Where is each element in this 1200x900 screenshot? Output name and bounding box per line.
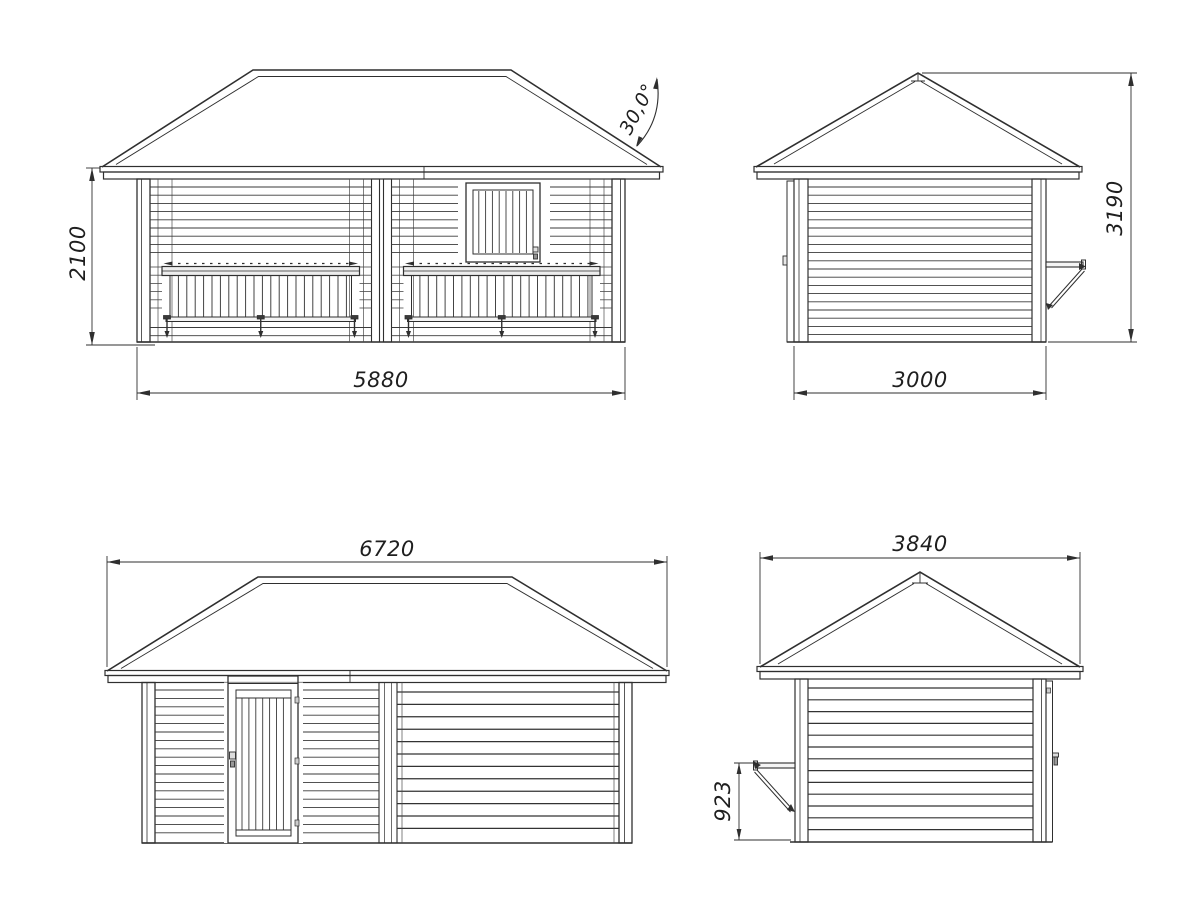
side-elevation-a-view: 3000 3190 bbox=[754, 73, 1137, 400]
rear-roof bbox=[105, 577, 669, 683]
technical-drawing-sheet: 2100 5880 30,0° 3000 3190 6720 bbox=[0, 0, 1200, 900]
rear-wall bbox=[142, 676, 632, 843]
front-wall bbox=[137, 179, 625, 342]
front-elevation-view: 2100 5880 30,0° bbox=[66, 70, 663, 400]
side-a-roof bbox=[754, 73, 1082, 179]
side-a-wall bbox=[783, 179, 1086, 342]
side-b-wall bbox=[753, 679, 1059, 842]
dimension-label-front-width: 5880 bbox=[353, 368, 408, 392]
front-roof bbox=[100, 70, 663, 179]
rear-elevation-view: 6720 bbox=[105, 537, 669, 843]
dimension-label-front-height: 2100 bbox=[66, 225, 90, 280]
dimension-label-roof-angle: 30,0° bbox=[615, 80, 660, 138]
dimension-label-side-a-width: 3000 bbox=[892, 368, 947, 392]
side-elevation-b-view: 3840 923 bbox=[711, 532, 1083, 842]
side-b-roof bbox=[757, 572, 1083, 679]
dimension-label-rear-roof-width: 6720 bbox=[359, 537, 414, 561]
dimension-label-flap-height: 923 bbox=[711, 780, 735, 822]
pavilion-elevation-drawing: 2100 5880 30,0° 3000 3190 6720 bbox=[0, 0, 1200, 900]
dimension-label-side-a-height: 3190 bbox=[1103, 180, 1127, 235]
dimension-label-side-b-roof-width: 3840 bbox=[892, 532, 947, 556]
front-dimensions: 2100 5880 30,0° bbox=[66, 77, 660, 400]
rear-dimensions: 6720 bbox=[107, 537, 667, 667]
